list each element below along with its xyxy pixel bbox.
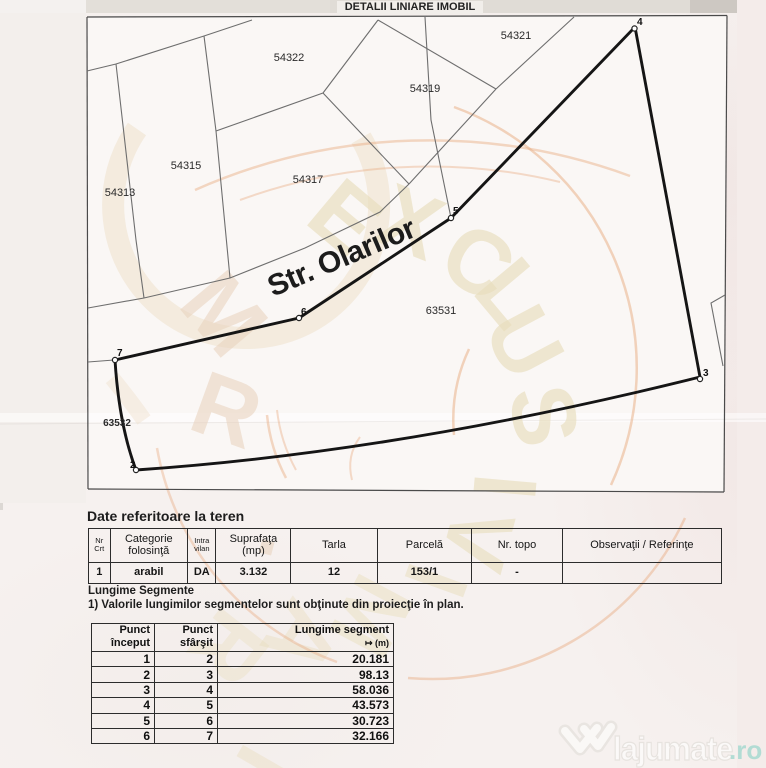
svg-text:54319: 54319 xyxy=(410,83,441,95)
svg-text:54322: 54322 xyxy=(274,52,305,64)
svg-text:54317: 54317 xyxy=(293,174,324,186)
svg-text:54321: 54321 xyxy=(501,30,532,42)
svg-text:.ro: .ro xyxy=(729,735,762,765)
svg-text:63531: 63531 xyxy=(426,305,457,317)
svg-text:2: 2 xyxy=(130,460,136,471)
svg-text:3: 3 xyxy=(703,368,709,379)
svg-text:63532: 63532 xyxy=(103,418,131,429)
svg-text:54313: 54313 xyxy=(105,187,136,199)
svg-text:4: 4 xyxy=(637,17,643,28)
svg-text:7: 7 xyxy=(117,348,123,359)
svg-text:lajumate: lajumate xyxy=(613,730,733,767)
svg-text:54315: 54315 xyxy=(171,160,202,172)
svg-text:6: 6 xyxy=(301,307,307,318)
svg-text:5: 5 xyxy=(453,206,459,217)
